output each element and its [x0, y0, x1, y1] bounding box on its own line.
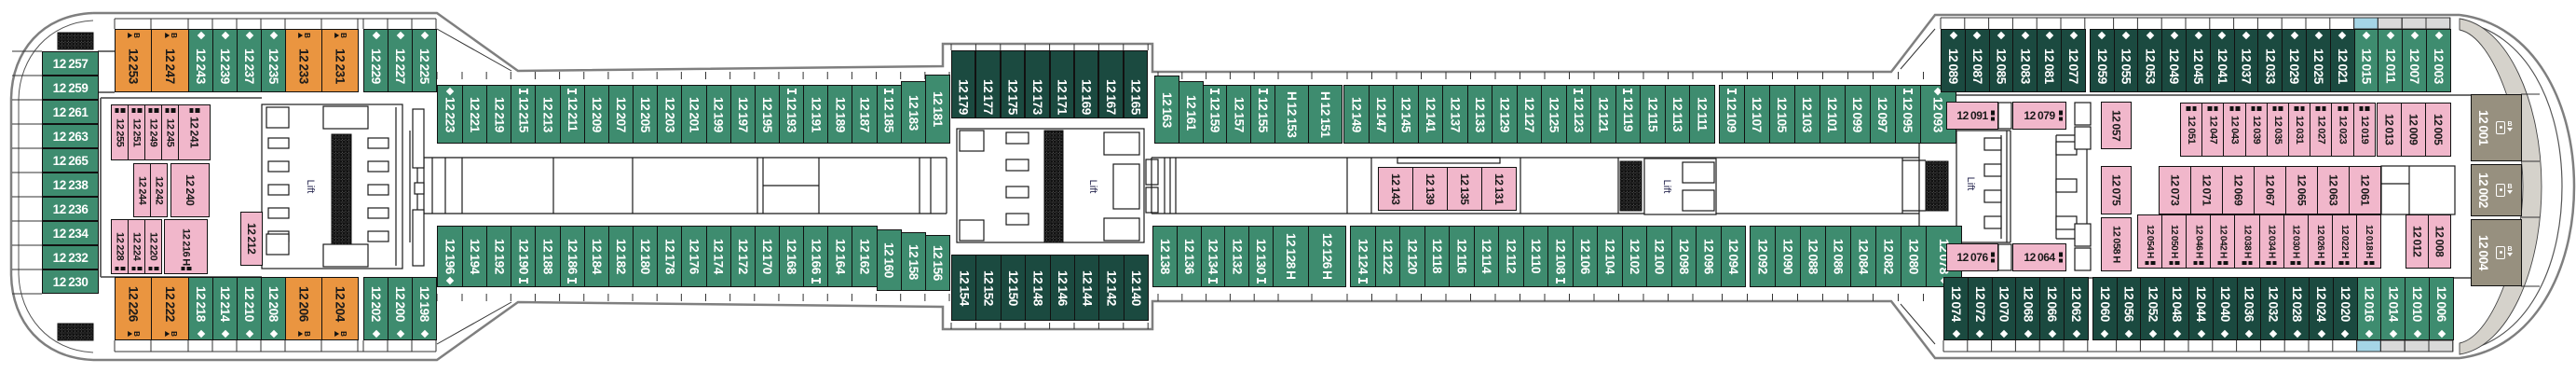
- svg-text:Lift: Lift: [1661, 180, 1672, 194]
- svg-text:Lift: Lift: [1087, 180, 1098, 194]
- svg-text:Lift: Lift: [305, 180, 316, 194]
- svg-text:Lift: Lift: [1965, 177, 1976, 191]
